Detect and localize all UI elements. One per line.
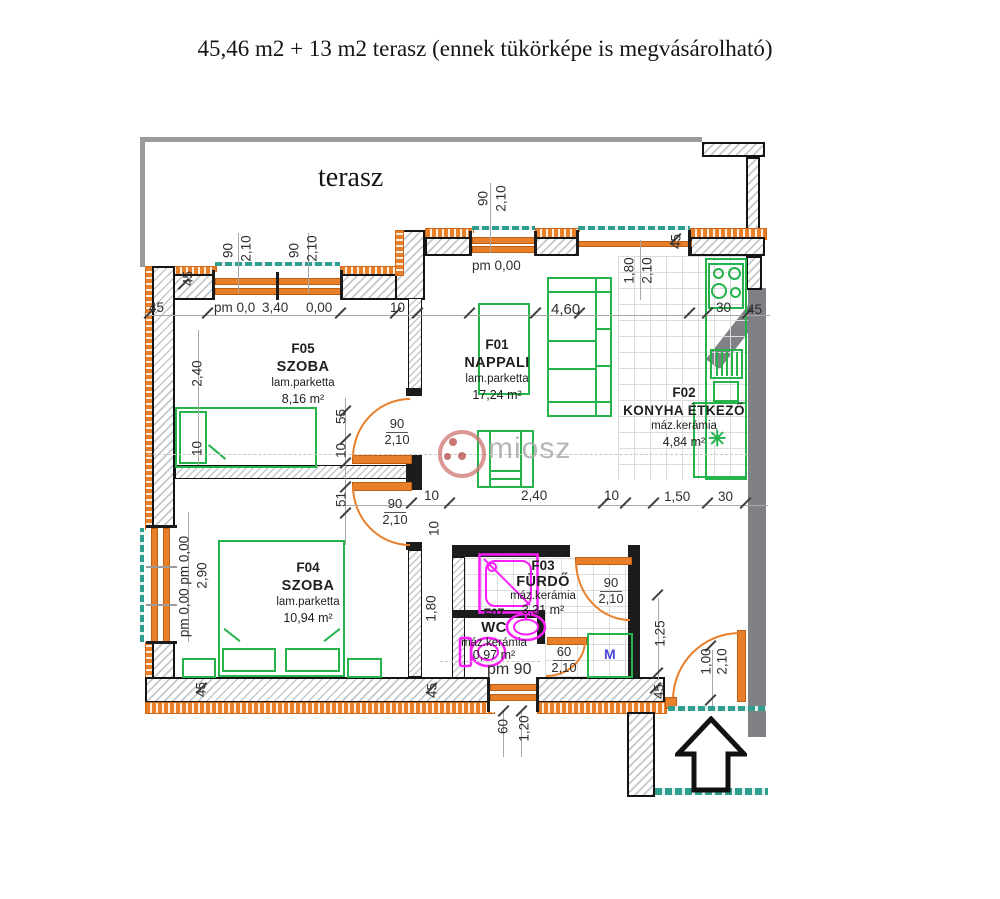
room-area: 8,16 m²: [253, 391, 353, 407]
dim-den: 2,10: [588, 592, 634, 607]
neighbor-wall-top: [702, 142, 765, 157]
watermark-text: miosz: [488, 432, 571, 466]
dim-label: pm 0,0: [214, 300, 255, 315]
dim-den: 2,10: [374, 433, 420, 448]
window-mullion: [276, 272, 279, 300]
exterior-wall: [746, 256, 762, 290]
sofa-line: [547, 401, 612, 403]
room-name: FÜRDŐ: [493, 574, 593, 591]
sofa-line: [547, 368, 595, 370]
dim-label: 10: [190, 427, 205, 471]
dim-label: 10: [390, 300, 405, 315]
stove-burner: [730, 287, 741, 298]
dim-tick: [647, 497, 659, 509]
dim-label: 1,00: [699, 640, 714, 684]
window-sill: [140, 528, 144, 642]
dim-label: pm 0,00 pm 0,00: [177, 527, 192, 647]
door-dim-label: 90 2,10: [374, 417, 420, 448]
room-id: F05: [253, 340, 353, 358]
exterior-wall: [425, 237, 472, 256]
bed-pillow: [285, 648, 340, 672]
room-floor: máz.kerámia: [604, 419, 764, 434]
dim-label: 51: [334, 478, 349, 522]
sink-drainer-line: [716, 352, 718, 376]
dim-num: 90: [386, 417, 408, 433]
dim-num: 60: [553, 645, 575, 661]
window-jamb: [536, 677, 539, 712]
sofa-line: [547, 291, 612, 293]
window-jamb: [469, 231, 472, 256]
dim-tick: [529, 307, 541, 319]
dim-label: 2,10: [494, 177, 509, 221]
door-dim-label: 60 2,10: [543, 645, 585, 676]
dim-label: 2,40: [190, 352, 205, 396]
room-id: F02: [604, 384, 764, 402]
window-sill: [472, 226, 535, 230]
dim-label: 30: [716, 300, 731, 315]
entrance-threshold: [668, 706, 766, 711]
window-divider: [146, 604, 177, 606]
room-floor: lam.parketta: [253, 376, 353, 391]
room-area: 17,24 m²: [447, 387, 547, 403]
stove-burner: [713, 268, 724, 279]
room-floor: lam.parketta: [447, 372, 547, 387]
stove-burner: [728, 267, 741, 280]
room-name: SZOBA: [258, 577, 358, 596]
room-name: SZOBA: [253, 358, 353, 377]
floor-plan: 45,46 m2 + 13 m2 terasz (ennek tükörképe…: [0, 0, 1000, 899]
window-jamb: [212, 270, 215, 300]
dim-label: 45: [149, 300, 164, 315]
bed-pillow: [222, 648, 276, 672]
dim-tick: [701, 497, 713, 509]
dim-label: 45: [425, 669, 440, 713]
dim-label: 10: [334, 429, 349, 473]
dim-tick: [443, 497, 455, 509]
dim-tick: [463, 307, 475, 319]
dim-num: 90: [384, 497, 406, 513]
page-title: 45,46 m2 + 13 m2 terasz (ennek tükörképe…: [0, 36, 970, 62]
dim-label: pm 0,00: [472, 258, 521, 273]
sink-drainer-line: [726, 352, 728, 376]
exterior-wall: [690, 237, 765, 256]
dim-label: 2,10: [239, 227, 254, 271]
window-jamb: [146, 641, 177, 644]
dim-label: 90: [287, 229, 302, 273]
room-area: 0,97 m²: [444, 649, 544, 663]
dim-label: 90: [221, 229, 236, 273]
dimension-line: [145, 315, 770, 316]
room-area: 4,84 m²: [604, 434, 764, 450]
dim-label: 2,10: [305, 227, 320, 271]
dim-label: 2,90: [195, 554, 210, 598]
dim-label: 0,00: [306, 300, 332, 315]
dim-label: 10: [427, 507, 442, 551]
stairwell-wall: [627, 712, 655, 797]
room-floor: máz.kerámia: [493, 590, 593, 603]
dim-label: 1,20: [517, 707, 532, 751]
dim-label: 10: [604, 488, 619, 503]
dim-label: 45: [747, 302, 762, 317]
room-id: F04: [258, 559, 358, 577]
dim-label: 90: [476, 177, 491, 221]
window-jamb: [146, 525, 177, 528]
room-label-f05: F05 SZOBA lam.parketta 8,16 m²: [253, 340, 353, 408]
sink-drainer-line: [731, 352, 733, 376]
dim-label: 1,25: [653, 612, 668, 656]
window-frame: [163, 528, 170, 644]
window-jamb: [534, 231, 537, 256]
stove-burner: [711, 283, 727, 299]
neighbor-section-band: [748, 288, 766, 737]
dim-tick: [334, 307, 346, 319]
dim-label: 1,50: [664, 489, 690, 504]
sink-drainer-line: [736, 352, 738, 376]
sofa-line: [595, 277, 597, 417]
window-frame: [151, 528, 158, 644]
dim-label: 45: [181, 257, 196, 301]
watermark-logo-dot: [458, 452, 466, 460]
room-label-f04: F04 SZOBA lam.parketta 10,94 m²: [258, 559, 358, 627]
room-label-f02: F02 KONYHA ÉTKEZŐ máz.kerámia 4,84 m²: [604, 384, 764, 450]
dim-label: 10: [424, 488, 439, 503]
room-label-f01: F01 NAPPALI lam.parketta 17,24 m²: [447, 336, 547, 404]
dim-label: 30: [718, 489, 733, 504]
sofa: [547, 277, 612, 417]
entrance-arrow: [675, 716, 747, 794]
window-jamb: [340, 270, 343, 300]
window-frame: [472, 237, 537, 244]
terrace-border-left: [140, 137, 145, 267]
sofa-line: [547, 340, 595, 342]
nightstand: [347, 658, 382, 678]
room-name: NAPPALI: [447, 354, 547, 373]
watermark-logo-dot: [449, 438, 457, 446]
dim-label: 2,10: [640, 249, 655, 293]
window-jamb: [688, 230, 691, 256]
exterior-wall: [535, 237, 578, 256]
dim-label: 2,40: [521, 488, 547, 503]
terrace-label: terasz: [318, 162, 383, 194]
room-floor: lam.parketta: [258, 595, 358, 610]
window-jamb: [576, 230, 579, 256]
dim-label: 2,10: [715, 640, 730, 684]
dim-tick: [201, 307, 213, 319]
dim-label: 45: [194, 668, 209, 712]
room-area: 10,94 m²: [258, 610, 358, 626]
armchair-line: [491, 470, 520, 472]
door-jamb: [406, 388, 422, 396]
dim-tick: [619, 497, 631, 509]
room-label-f07: F07 WC máz.kerámia 0,97 m²: [444, 607, 544, 663]
dim-label: 3,40: [262, 300, 288, 315]
room-id: F01: [447, 336, 547, 354]
window-divider: [146, 566, 177, 568]
dim-label: 1,80: [622, 249, 637, 293]
window-jamb: [487, 677, 490, 712]
dim-label: 60: [496, 705, 511, 749]
window-frame: [472, 246, 537, 253]
dim-label: 4,60: [551, 301, 580, 318]
watermark-logo-dot: [444, 453, 451, 460]
room-name: WC: [444, 620, 544, 637]
door-dim-label: 90 2,10: [372, 497, 418, 528]
armchair-line: [491, 478, 520, 480]
dim-den: 2,10: [372, 513, 418, 528]
sofa-line: [595, 328, 612, 330]
dim-den: 2,10: [543, 661, 585, 676]
interior-wall: [408, 550, 422, 677]
dim-num: 90: [600, 576, 622, 592]
door-dim-label: 90 2,10: [588, 576, 634, 607]
dim-label: pm 90: [487, 661, 531, 679]
dim-label: 1,80: [424, 587, 439, 631]
window-frame: [490, 684, 539, 691]
sofa-line: [595, 365, 612, 367]
room-id: F03: [493, 558, 593, 574]
washing-machine-label: M: [604, 646, 616, 662]
window-frame: [490, 694, 539, 701]
sink-drainer-line: [721, 352, 723, 376]
room-name: KONYHA ÉTKEZŐ: [604, 402, 764, 420]
insulation-band: [395, 230, 404, 276]
terrace-border-top: [140, 137, 702, 142]
dim-label: 45: [669, 220, 684, 264]
dim-label: 45: [652, 670, 667, 714]
exterior-wall: [537, 677, 665, 703]
